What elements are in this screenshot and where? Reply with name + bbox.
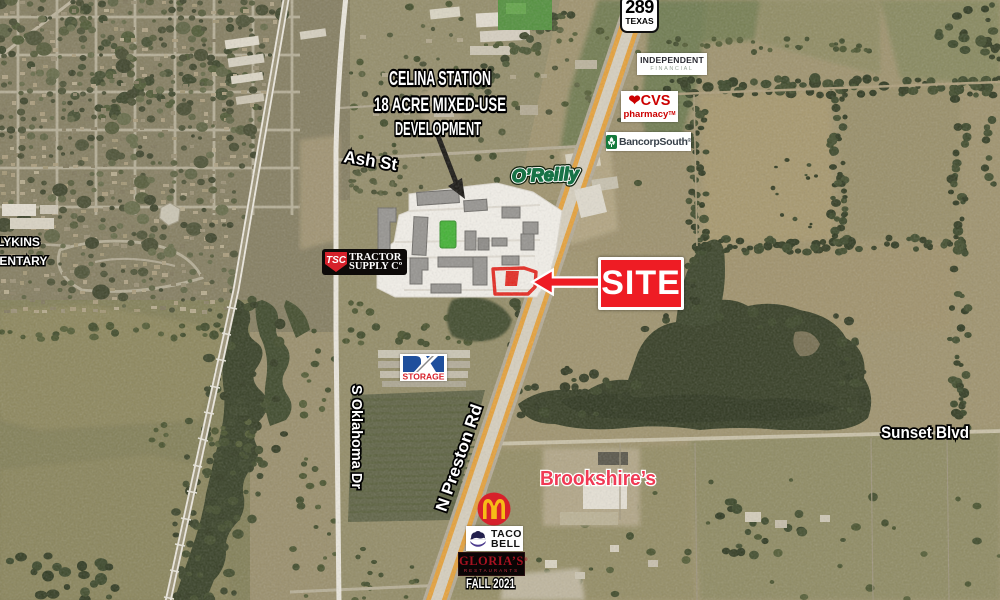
svg-text:ELEMENTARY: ELEMENTARY (0, 254, 47, 268)
svg-text:S Oklahoma Dr: S Oklahoma Dr (348, 385, 365, 489)
svg-text:FALL 2021: FALL 2021 (466, 576, 515, 591)
svg-text:CELINA STATION: CELINA STATION (389, 68, 491, 90)
svg-text:STORAGE: STORAGE (403, 372, 445, 382)
svg-text:18 ACRE MIXED-USE: 18 ACRE MIXED-USE (374, 95, 506, 116)
svg-text:LYKINS: LYKINS (0, 235, 40, 249)
svg-text:Brookshire’s: Brookshire’s (540, 467, 656, 490)
svg-text:DEVELOPMENT: DEVELOPMENT (395, 119, 481, 139)
svg-text:O’Reilly: O’Reilly (511, 164, 580, 186)
svg-text:Sunset Blvd: Sunset Blvd (881, 423, 969, 442)
